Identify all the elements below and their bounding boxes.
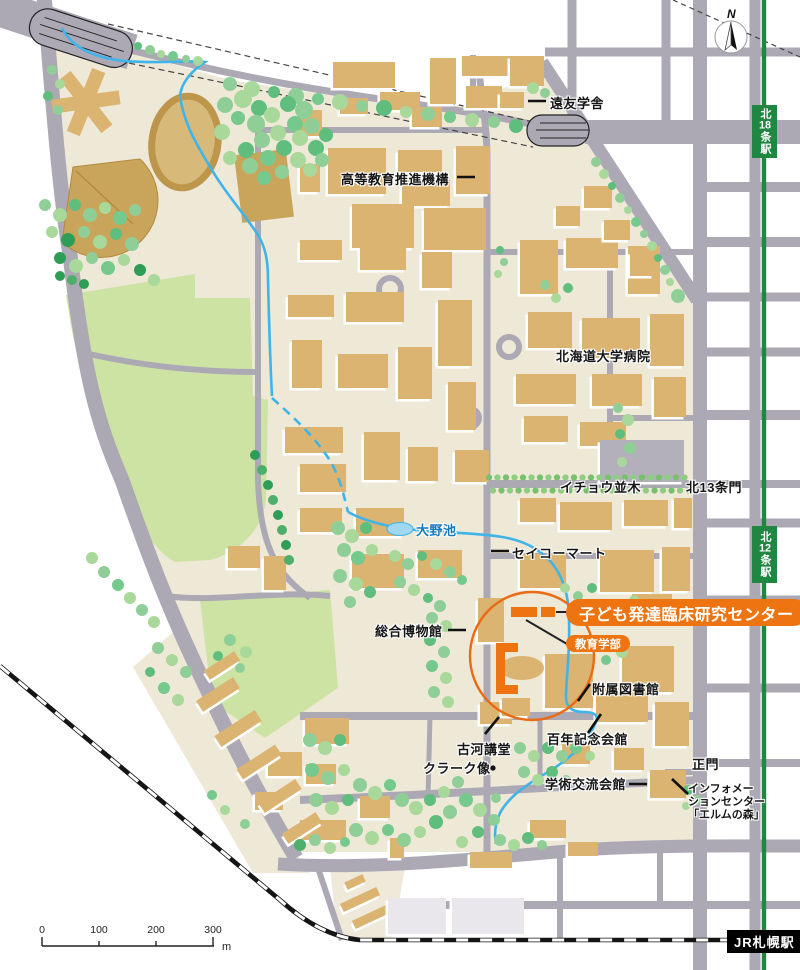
tree — [157, 50, 165, 58]
tree — [366, 544, 378, 556]
tree — [39, 199, 51, 211]
tree — [671, 289, 685, 303]
info-line1: インフォメー — [688, 783, 765, 796]
label-furukawa-hall: 古河講堂 — [457, 739, 511, 758]
building — [448, 382, 476, 430]
tree — [148, 616, 160, 628]
tree — [235, 663, 245, 673]
tree — [417, 551, 427, 561]
tree — [424, 794, 436, 806]
tree — [631, 217, 641, 227]
tunnel-portal-east — [527, 115, 589, 146]
tree — [168, 51, 178, 61]
tree — [250, 450, 260, 460]
tree — [356, 100, 368, 112]
tree — [349, 823, 363, 837]
tree — [496, 246, 504, 254]
tree — [342, 794, 354, 806]
tree — [514, 742, 526, 754]
tree — [303, 733, 317, 747]
tree — [295, 101, 313, 119]
tree — [608, 182, 616, 190]
tree — [257, 171, 271, 185]
ginkgo-tree — [503, 474, 509, 480]
station-jr-sapporo: JR札幌駅 — [727, 930, 800, 953]
building — [520, 498, 556, 522]
ginkgo-tree — [511, 474, 517, 480]
tree — [522, 832, 534, 844]
building — [604, 220, 630, 240]
ginkgo-tree — [532, 487, 538, 493]
tree — [112, 579, 124, 591]
tree — [321, 771, 335, 785]
building — [466, 86, 502, 108]
tree — [456, 836, 468, 848]
tree — [166, 654, 178, 666]
ginkgo-tree — [507, 487, 513, 493]
tree — [136, 604, 148, 616]
tree — [134, 264, 146, 276]
building — [430, 58, 456, 104]
building — [655, 702, 689, 746]
building — [228, 546, 260, 568]
tree — [400, 106, 412, 118]
tree — [61, 233, 75, 247]
tree — [304, 118, 320, 134]
building — [346, 292, 404, 322]
road — [428, 716, 430, 798]
building — [500, 92, 524, 108]
tree — [540, 280, 550, 290]
tree — [338, 764, 350, 776]
center-building — [541, 607, 555, 617]
tree — [145, 45, 155, 55]
tree — [660, 265, 670, 275]
tree — [83, 208, 97, 222]
tree — [158, 682, 170, 694]
tree — [148, 274, 160, 286]
tree — [345, 529, 359, 543]
tree — [260, 150, 276, 166]
tree — [563, 283, 573, 293]
tree — [223, 151, 237, 165]
ginkgo-tree — [664, 474, 670, 480]
tree — [337, 543, 351, 557]
tree — [428, 686, 440, 698]
station-kita18-suffix: 条駅 — [759, 131, 770, 155]
tree — [395, 793, 409, 807]
tree — [240, 819, 250, 829]
ginkgo-tree — [643, 487, 649, 493]
ginkgo-tree — [528, 474, 534, 480]
tree — [440, 672, 452, 684]
north-label: N — [727, 7, 736, 21]
building — [592, 374, 642, 406]
tree — [234, 90, 252, 108]
label-enyu-gakusha: 遠友学舎 — [550, 93, 604, 112]
tree — [43, 91, 53, 101]
building — [556, 206, 580, 226]
info-line2: ションセンター — [688, 796, 765, 809]
label-hyakunen-hall: 百年記念会館 — [547, 729, 628, 748]
tree — [180, 666, 192, 678]
building — [288, 295, 334, 317]
tree — [224, 634, 236, 646]
ginkgo-tree — [668, 487, 674, 493]
scale-0: 0 — [39, 924, 45, 936]
tree — [268, 86, 280, 98]
station-kita18-number: 18 — [759, 120, 770, 131]
tree — [240, 646, 252, 658]
label-clark-statue: クラーク像 — [423, 758, 491, 777]
tree — [110, 228, 122, 240]
ginkgo-tree — [549, 487, 555, 493]
tree — [414, 826, 426, 838]
ginkgo-tree — [494, 474, 500, 480]
station-kita18: 北18条駅 — [752, 105, 777, 158]
tree — [53, 105, 63, 115]
building — [674, 498, 692, 528]
ginkgo-tree — [545, 474, 551, 480]
building — [408, 447, 438, 481]
tree — [324, 842, 336, 854]
building — [452, 898, 524, 934]
tree — [292, 130, 308, 146]
tree — [125, 237, 139, 251]
tree — [315, 153, 329, 167]
tree — [319, 128, 333, 142]
building — [424, 208, 486, 250]
tree — [408, 584, 420, 596]
tree — [193, 56, 203, 66]
tree — [290, 152, 306, 168]
tree — [118, 254, 130, 266]
building — [528, 312, 572, 348]
building — [524, 416, 568, 442]
tree — [444, 566, 456, 578]
building — [470, 852, 512, 868]
tree — [365, 831, 379, 845]
tree — [591, 157, 601, 167]
tree — [613, 403, 623, 413]
building — [654, 377, 686, 417]
tree — [93, 235, 107, 249]
tree — [318, 741, 332, 755]
ginkgo-tree — [520, 474, 526, 480]
building — [300, 240, 342, 260]
tree — [213, 651, 223, 661]
ginkgo-tree — [498, 487, 504, 493]
tree — [402, 558, 414, 570]
tree — [434, 600, 446, 612]
ginkgo-tree — [647, 474, 653, 480]
label-main-gate: 正門 — [692, 754, 719, 773]
campus-map: N 0 100 200 300 m 遠友学舎 高等教育推進機構 北海道大学病院 … — [0, 0, 800, 970]
tree — [430, 558, 442, 570]
building-oval — [500, 656, 544, 680]
center-annex-building — [511, 607, 537, 617]
tree — [79, 279, 89, 289]
tree — [124, 592, 136, 604]
ginkgo-tree — [486, 474, 492, 480]
tree — [280, 96, 296, 112]
tree — [312, 93, 324, 105]
tree — [55, 271, 65, 281]
tree — [152, 642, 164, 654]
tree — [500, 258, 508, 266]
tree — [488, 116, 500, 128]
tree — [617, 457, 627, 467]
tree — [457, 575, 467, 585]
tree — [488, 814, 500, 826]
clark-statue-dot — [490, 765, 495, 770]
tree — [540, 88, 550, 98]
building — [624, 500, 668, 526]
building — [600, 550, 654, 592]
tree — [277, 525, 287, 535]
tree — [242, 158, 258, 174]
ginkgo-tree — [660, 487, 666, 493]
campus-map-svg: N 0 100 200 300 m — [0, 0, 800, 970]
tree — [376, 100, 392, 116]
tree — [528, 750, 540, 762]
building — [584, 186, 612, 208]
label-seicomart: セイコーマート — [512, 543, 607, 562]
center-callout-pill: 子ども発達臨床研究センター — [566, 599, 800, 626]
station-kita12-prefix: 北 — [759, 531, 770, 543]
tree — [113, 211, 127, 225]
tree — [443, 805, 457, 819]
tree — [601, 655, 611, 665]
tree — [384, 779, 396, 791]
tree — [275, 165, 289, 179]
scale-200: 200 — [147, 924, 165, 936]
tree — [223, 77, 237, 91]
tree — [182, 55, 190, 63]
tree — [465, 113, 479, 127]
tree — [349, 577, 363, 591]
scale-100: 100 — [90, 924, 108, 936]
tree — [78, 226, 90, 238]
tree — [281, 540, 291, 550]
building — [360, 248, 406, 270]
oono-pond-shape — [387, 523, 413, 536]
ginkgo-tree — [524, 487, 530, 493]
tree — [587, 583, 597, 593]
building — [516, 374, 576, 404]
building — [422, 252, 452, 288]
tree — [423, 593, 433, 603]
tree — [99, 202, 111, 214]
tree — [389, 550, 401, 562]
tree — [494, 270, 502, 278]
tree — [364, 586, 376, 598]
tree — [438, 786, 450, 798]
tree — [214, 124, 230, 140]
tree — [509, 119, 523, 133]
tree — [585, 751, 595, 761]
label-koto-kyoiku: 高等教育推進機構 — [341, 169, 449, 188]
building — [398, 347, 432, 399]
building — [530, 820, 566, 838]
tree — [231, 111, 245, 125]
label-info-center: インフォメー ションセンター 「エルムの森」 — [688, 783, 765, 822]
tree — [69, 259, 83, 273]
station-kita12-suffix: 条駅 — [759, 554, 770, 578]
tree — [145, 667, 155, 677]
tree — [86, 552, 98, 564]
tree — [438, 646, 450, 658]
tree — [220, 805, 230, 815]
tree — [382, 824, 394, 836]
building — [662, 547, 690, 591]
building — [456, 146, 490, 194]
building — [614, 748, 644, 770]
tree — [394, 576, 406, 588]
ginkgo-tree — [541, 487, 547, 493]
tree — [429, 815, 443, 829]
building — [333, 62, 395, 88]
tree — [537, 840, 547, 850]
tree — [615, 193, 625, 203]
tree — [409, 801, 423, 815]
tree — [98, 566, 110, 578]
faculty-callout-pill: 教育学部 — [566, 635, 630, 652]
tree — [55, 79, 65, 89]
tree — [305, 763, 319, 777]
label-library: 附属図書館 — [592, 679, 660, 698]
tree — [473, 803, 487, 817]
tree — [172, 694, 184, 706]
label-oono-pond: 大野池 — [416, 520, 457, 539]
tree — [333, 569, 347, 583]
tree — [615, 429, 625, 439]
tree — [303, 163, 317, 177]
tree — [491, 793, 501, 803]
tree — [640, 230, 648, 238]
label-hospital: 北海道大学病院 — [556, 346, 651, 365]
building — [650, 770, 686, 798]
building — [650, 314, 684, 366]
scale-300: 300 — [204, 924, 222, 936]
station-kita12-number: 12 — [759, 543, 770, 554]
tree — [368, 786, 382, 800]
building — [438, 300, 472, 366]
tree — [556, 750, 568, 762]
ginkgo-tree — [673, 474, 679, 480]
tree — [426, 660, 438, 672]
tree — [129, 204, 141, 216]
scale-unit: m — [222, 941, 231, 953]
tree — [624, 206, 632, 214]
tree — [264, 107, 280, 123]
label-kita13-gate: 北13条門 — [686, 477, 742, 496]
tree — [86, 252, 98, 264]
tree — [340, 837, 350, 847]
tree — [101, 261, 115, 275]
ginkgo-tree — [490, 487, 496, 493]
tree — [622, 414, 634, 426]
ginkgo-tree — [656, 474, 662, 480]
tree — [69, 199, 81, 211]
tree — [270, 125, 286, 141]
tree — [325, 801, 339, 815]
tree — [309, 793, 323, 807]
tree — [421, 107, 435, 121]
tree — [54, 252, 66, 264]
tree — [647, 241, 657, 251]
tree — [459, 793, 473, 807]
tree — [46, 226, 58, 238]
tree — [331, 521, 345, 535]
building — [455, 450, 489, 482]
label-gakujutsu-hall: 学術交流会館 — [545, 774, 626, 793]
tree — [397, 833, 411, 847]
tree — [257, 465, 267, 475]
ginkgo-tree — [537, 474, 543, 480]
tree — [263, 480, 273, 490]
ginkgo-tree — [677, 487, 683, 493]
tree — [360, 522, 372, 534]
tree — [472, 826, 484, 838]
tree — [353, 778, 367, 792]
tree — [284, 555, 294, 565]
tree — [351, 551, 365, 565]
tree — [207, 790, 217, 800]
ginkgo-tree — [515, 487, 521, 493]
tree — [276, 140, 292, 156]
building — [292, 340, 322, 388]
tree — [67, 275, 77, 285]
tree — [624, 442, 636, 454]
tree — [254, 132, 270, 148]
building — [520, 240, 558, 294]
building — [568, 842, 598, 856]
building — [630, 252, 654, 276]
tree — [332, 94, 348, 110]
tree — [666, 278, 674, 286]
building — [338, 354, 388, 388]
tree — [654, 254, 662, 262]
tree — [217, 97, 233, 113]
tree — [309, 834, 321, 846]
tree — [53, 208, 67, 222]
building — [560, 502, 612, 530]
tree — [247, 115, 265, 133]
station-kita12: 北12条駅 — [752, 526, 777, 583]
building — [388, 898, 446, 934]
tree — [273, 510, 283, 520]
station-kita18-prefix: 北 — [759, 108, 770, 120]
tree — [444, 111, 456, 123]
ginkgo-tree — [651, 487, 657, 493]
label-museum: 総合博物館 — [375, 621, 443, 640]
tree — [551, 293, 561, 303]
tree — [442, 696, 454, 708]
tree — [560, 583, 570, 593]
tree — [268, 495, 278, 505]
tree — [134, 42, 142, 50]
building — [352, 204, 414, 248]
tree — [47, 65, 57, 75]
tree — [294, 839, 306, 851]
tree — [334, 734, 346, 746]
label-icho-namiki: イチョウ並木 — [560, 477, 641, 496]
tree — [527, 82, 539, 94]
building — [510, 56, 544, 86]
building — [364, 432, 400, 480]
tree — [287, 116, 303, 132]
